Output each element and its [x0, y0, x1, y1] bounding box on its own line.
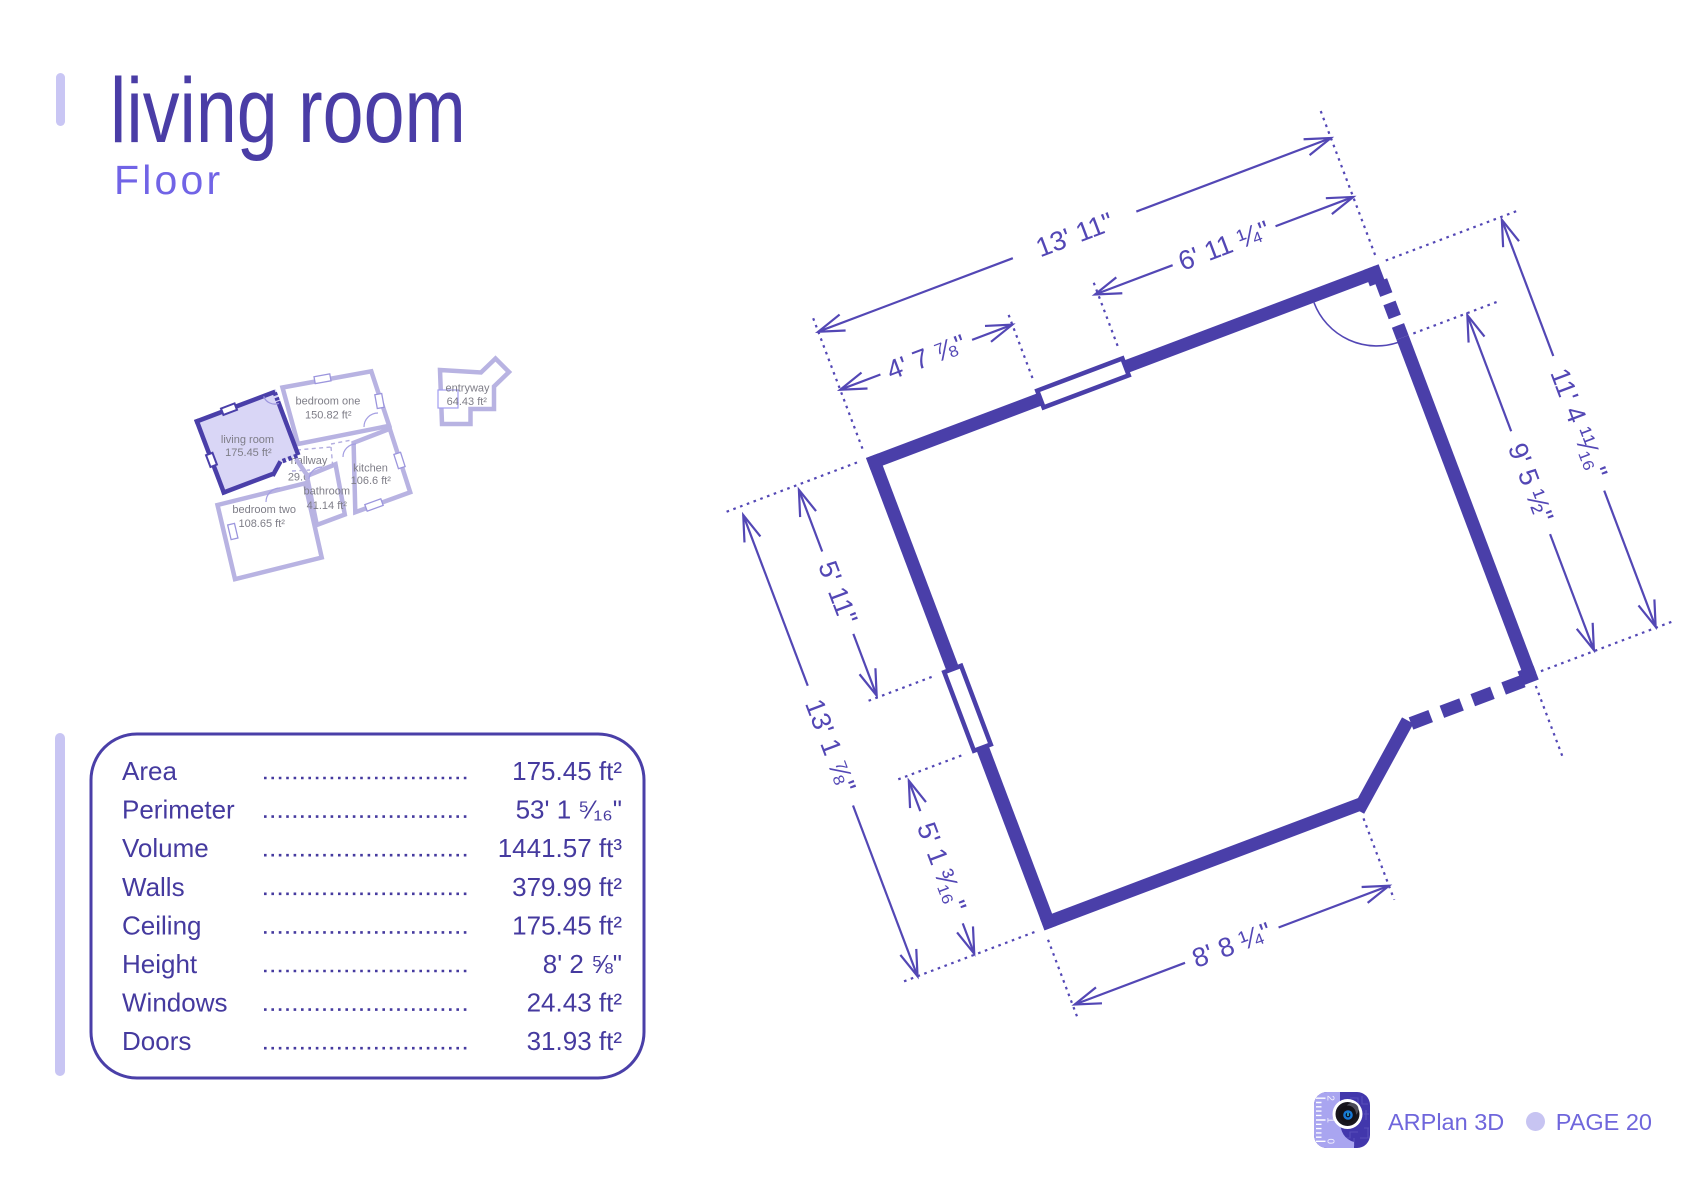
svg-text:379.99 ft²: 379.99 ft² [512, 872, 622, 902]
svg-text:106.6 ft²: 106.6 ft² [351, 475, 392, 487]
svg-text:31.93 ft²: 31.93 ft² [527, 1026, 623, 1056]
svg-text:11' 4 ¹¹⁄₁₆": 11' 4 ¹¹⁄₁₆" [1544, 364, 1613, 482]
svg-text:5' 11": 5' 11" [812, 557, 863, 629]
svg-text:Ceiling: Ceiling [122, 910, 202, 940]
svg-text:0: 0 [1325, 1139, 1336, 1145]
svg-text:53' 1 ⁵⁄₁₆": 53' 1 ⁵⁄₁₆" [516, 795, 622, 825]
svg-text:Volume: Volume [122, 833, 209, 863]
svg-text:13' 11": 13' 11" [1032, 207, 1118, 263]
svg-text:living room: living room [110, 59, 466, 162]
svg-text:9' 5 ½": 9' 5 ½" [1502, 439, 1559, 527]
svg-text:175.45 ft²: 175.45 ft² [512, 910, 622, 940]
svg-text:Area: Area [122, 756, 177, 786]
svg-text:Windows: Windows [122, 988, 227, 1018]
svg-text:2: 2 [1325, 1095, 1336, 1101]
svg-text:64.43 ft²: 64.43 ft² [447, 396, 488, 408]
svg-text:4' 7 ⅞": 4' 7 ⅞" [882, 329, 970, 386]
svg-text:150.82 ft²: 150.82 ft² [305, 410, 352, 422]
svg-text:entryway: entryway [445, 383, 490, 395]
svg-text:Doors: Doors [122, 1026, 191, 1056]
svg-text:PAGE 20: PAGE 20 [1556, 1109, 1652, 1135]
svg-text:13' 1 ⅞": 13' 1 ⅞" [799, 695, 861, 797]
svg-text:6' 11 ¼": 6' 11 ¼" [1174, 215, 1274, 277]
svg-text:1441.57 ft³: 1441.57 ft³ [498, 833, 623, 863]
svg-text:41.14 ft²: 41.14 ft² [307, 500, 348, 512]
svg-text:8' 8 ¼": 8' 8 ¼" [1188, 917, 1276, 974]
svg-text:Walls: Walls [122, 872, 185, 902]
svg-text:24.43 ft²: 24.43 ft² [527, 988, 623, 1018]
svg-text:175.45 ft²: 175.45 ft² [512, 756, 622, 786]
svg-text:8' 2 ⅝": 8' 2 ⅝" [543, 949, 622, 979]
svg-text:bathroom: bathroom [304, 485, 350, 497]
svg-text:175.45 ft²: 175.45 ft² [225, 447, 272, 459]
svg-text:bedroom two: bedroom two [232, 504, 296, 516]
svg-text:108.65 ft²: 108.65 ft² [238, 518, 285, 530]
svg-text:living room: living room [221, 434, 274, 446]
svg-text:ARPlan 3D: ARPlan 3D [1388, 1109, 1504, 1135]
svg-text:bedroom one: bedroom one [295, 396, 360, 408]
svg-text:kitchen: kitchen [353, 463, 388, 475]
svg-text:Floor: Floor [114, 157, 223, 203]
svg-text:5' 1 ³⁄₁₆": 5' 1 ³⁄₁₆" [911, 818, 972, 916]
svg-text:Perimeter: Perimeter [122, 795, 235, 825]
svg-text:Height: Height [122, 949, 198, 979]
